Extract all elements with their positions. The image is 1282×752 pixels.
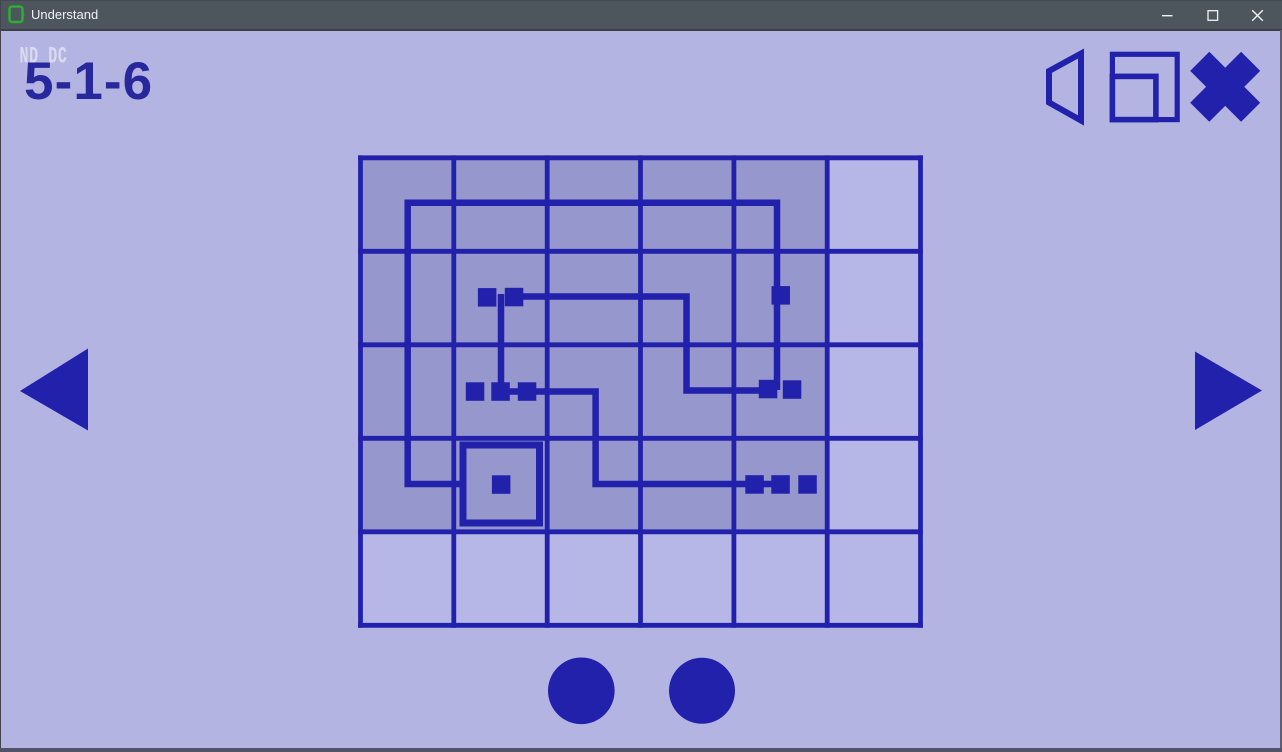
svg-text:5-1-6: 5-1-6 — [24, 52, 153, 111]
